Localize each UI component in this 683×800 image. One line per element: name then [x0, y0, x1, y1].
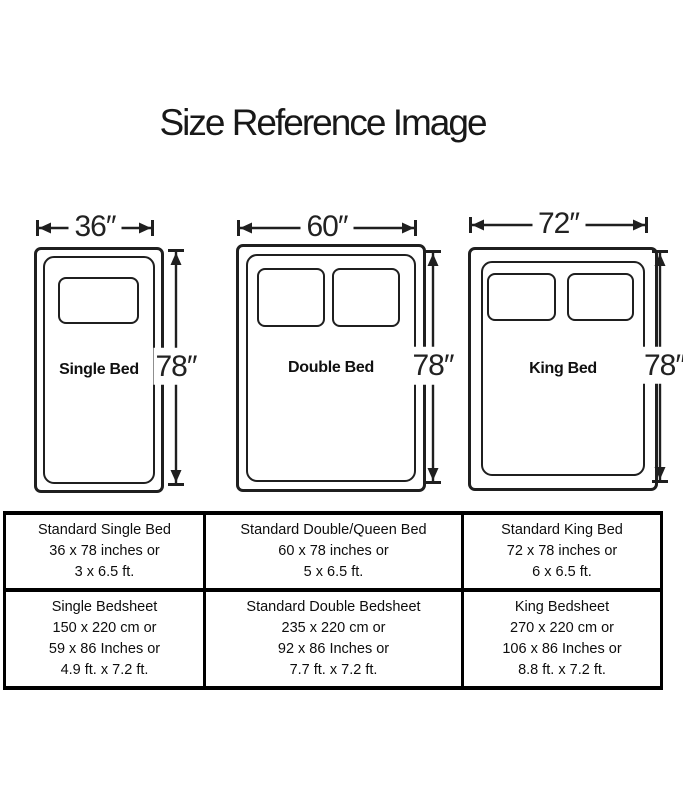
double-bed-pillow-left: [257, 268, 325, 327]
cell-line: 8.8 ft. x 7.2 ft.: [464, 660, 660, 681]
single-bed-outline: Single Bed: [34, 247, 164, 493]
standard-double-bed-cell: Standard Double/Queen Bed 60 x 78 inches…: [205, 513, 463, 590]
single-bed-width-label: 36″: [69, 211, 122, 243]
cell-line: 7.7 ft. x 7.2 ft.: [206, 660, 461, 681]
king-bed-width-label: 72″: [532, 208, 585, 240]
single-bed-label: Single Bed: [37, 361, 161, 379]
standard-single-bed-cell: Standard Single Bed 36 x 78 inches or 3 …: [5, 513, 205, 590]
standard-king-bed-cell: Standard King Bed 72 x 78 inches or 6 x …: [463, 513, 662, 590]
cell-line: 72 x 78 inches or: [464, 541, 660, 562]
cell-line: Standard Single Bed: [6, 520, 203, 541]
single-bed-height-label: 78″: [154, 347, 199, 385]
king-bed-height-arrow: 78″: [649, 250, 671, 483]
cell-line: Standard King Bed: [464, 520, 660, 541]
size-reference-image: Size Reference Image 36″ Single Bed 78″: [0, 0, 683, 800]
single-bed-height-arrow: 78″: [165, 249, 187, 486]
cell-line: Single Bedsheet: [6, 597, 203, 618]
single-bed-pillow: [58, 277, 139, 324]
bed-sizes-row: Standard Single Bed 36 x 78 inches or 3 …: [5, 513, 662, 590]
page-title: Size Reference Image: [0, 103, 645, 144]
cell-line: 5 x 6.5 ft.: [206, 562, 461, 583]
cell-line: Standard Double Bedsheet: [206, 597, 461, 618]
king-bed-height-label: 78″: [642, 346, 683, 384]
king-bed-outline: King Bed: [468, 247, 658, 491]
cell-line: 59 x 86 Inches or: [6, 639, 203, 660]
king-bedsheet-cell: King Bedsheet 270 x 220 cm or 106 x 86 I…: [463, 590, 662, 688]
double-bed-height-arrow: 78″: [422, 250, 444, 484]
cell-line: 60 x 78 inches or: [206, 541, 461, 562]
size-table: Standard Single Bed 36 x 78 inches or 3 …: [3, 511, 663, 690]
single-bedsheet-cell: Single Bedsheet 150 x 220 cm or 59 x 86 …: [5, 590, 205, 688]
cell-line: 270 x 220 cm or: [464, 618, 660, 639]
king-bed-pillow-right: [567, 273, 634, 321]
double-bed-height-label: 78″: [411, 347, 456, 385]
double-bed-outline: Double Bed: [236, 244, 426, 492]
cell-line: King Bedsheet: [464, 597, 660, 618]
cell-line: 36 x 78 inches or: [6, 541, 203, 562]
cell-line: 3 x 6.5 ft.: [6, 562, 203, 583]
king-bed-width-arrow: 72″: [469, 214, 648, 236]
king-bed-pillow-left: [487, 273, 556, 321]
cell-line: 92 x 86 Inches or: [206, 639, 461, 660]
cell-line: 106 x 86 Inches or: [464, 639, 660, 660]
double-bed-width-label: 60″: [301, 211, 354, 243]
cell-line: 6 x 6.5 ft.: [464, 562, 660, 583]
cell-line: 150 x 220 cm or: [6, 618, 203, 639]
cell-line: Standard Double/Queen Bed: [206, 520, 461, 541]
double-bed-width-arrow: 60″: [237, 217, 417, 239]
double-bed-label: Double Bed: [239, 359, 423, 377]
double-bed-pillow-right: [332, 268, 400, 327]
cell-line: 235 x 220 cm or: [206, 618, 461, 639]
bedsheet-sizes-row: Single Bedsheet 150 x 220 cm or 59 x 86 …: [5, 590, 662, 688]
cell-line: 4.9 ft. x 7.2 ft.: [6, 660, 203, 681]
double-bedsheet-cell: Standard Double Bedsheet 235 x 220 cm or…: [205, 590, 463, 688]
single-bed-width-arrow: 36″: [36, 217, 154, 239]
king-bed-label: King Bed: [471, 360, 655, 378]
